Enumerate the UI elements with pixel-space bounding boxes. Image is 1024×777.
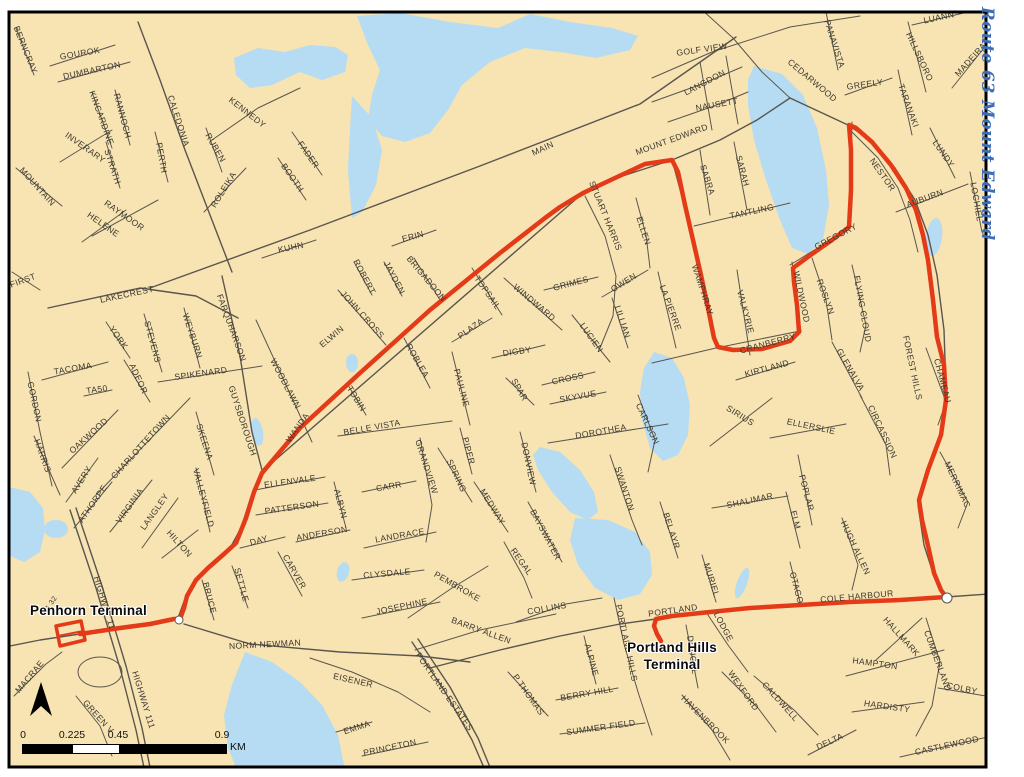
scale-tick-3: 0.9 xyxy=(215,729,230,741)
scale-strip xyxy=(22,744,227,754)
roundabout xyxy=(175,616,183,624)
portland-hills-terminal-label: Portland Hills Terminal xyxy=(612,640,732,674)
map-layers: BERNCRAYGOUROKDUMBARTONKINCARDINERANNOCH… xyxy=(0,8,992,777)
penhorn-terminal-label: Penhorn Terminal xyxy=(30,603,147,618)
scale-unit: KM xyxy=(230,741,246,753)
scale-tick-1: 0.225 xyxy=(59,729,85,741)
scale-tick-0: 0 xyxy=(20,729,26,741)
map-background xyxy=(9,12,986,767)
scale-tick-2: 0.45 xyxy=(108,729,128,741)
portland-hills-terminal-line1: Portland Hills xyxy=(612,640,732,657)
scale-bar: 0 0.225 0.45 0.9 KM xyxy=(18,729,268,759)
map-title: Route 63 Mount Edward xyxy=(978,7,997,241)
lake xyxy=(346,354,358,372)
map-canvas: BERNCRAYGOUROKDUMBARTONKINCARDINERANNOCH… xyxy=(0,0,1024,777)
route-map-page: BERNCRAYGOUROKDUMBARTONKINCARDINERANNOCH… xyxy=(0,0,1024,777)
portland-hills-terminal-line2: Terminal xyxy=(612,657,732,674)
lake xyxy=(44,520,68,538)
north-arrow-icon xyxy=(24,680,58,722)
roundabout xyxy=(942,593,952,603)
